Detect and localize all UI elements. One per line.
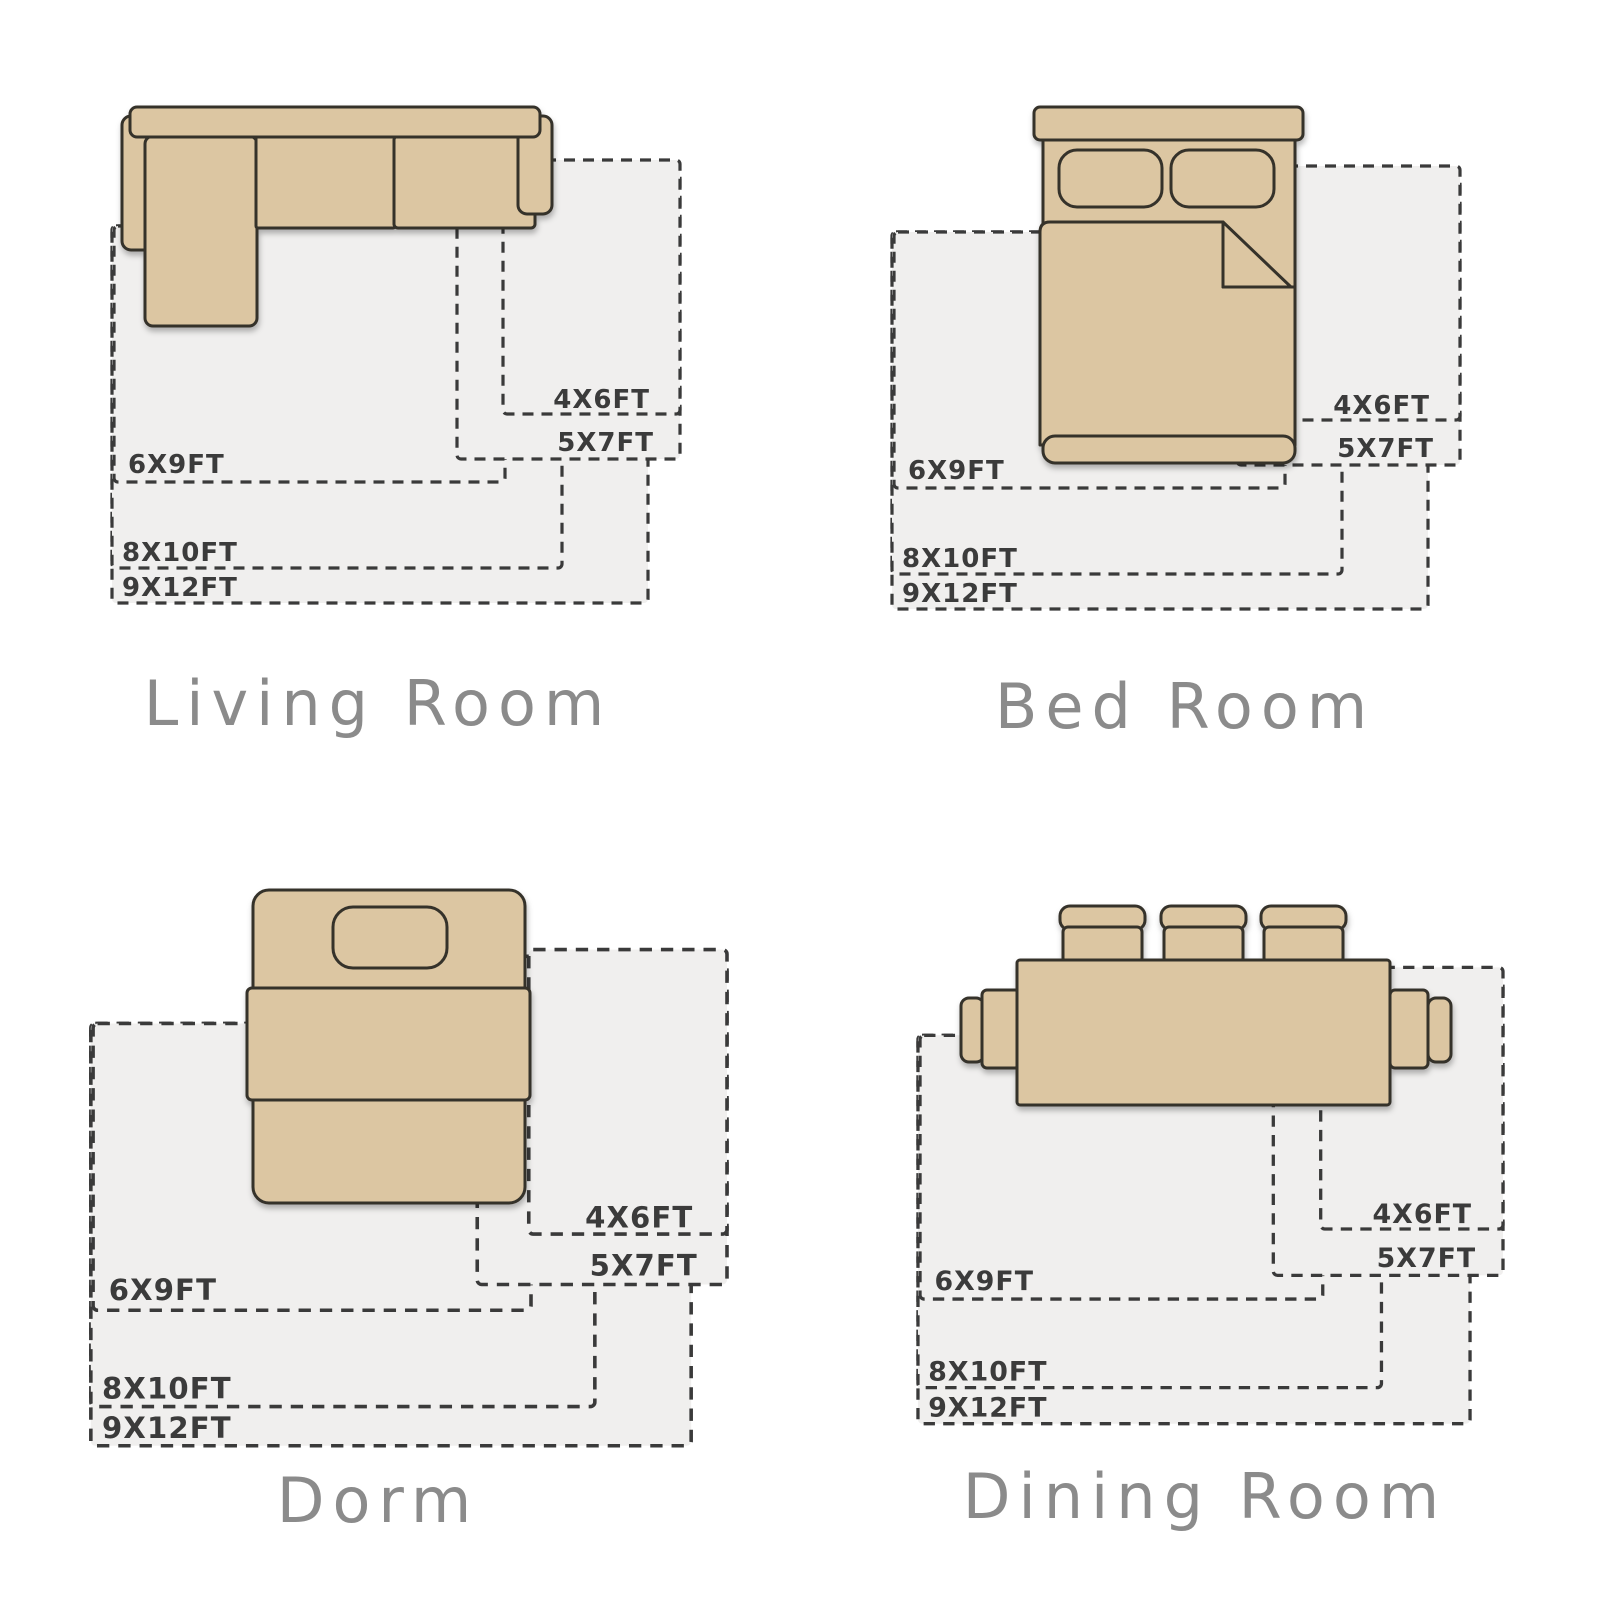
section-title-bed-room: Bed Room bbox=[995, 670, 1375, 743]
dorm-bed-pillow bbox=[333, 907, 447, 968]
dining-chair-back bbox=[1428, 998, 1451, 1062]
sofa-backrest bbox=[130, 107, 540, 137]
dining-chair-seat bbox=[1063, 927, 1142, 963]
bed-pillow-left bbox=[1059, 150, 1162, 207]
bed-pillow-right bbox=[1171, 150, 1274, 207]
rug-size-label: 4X6FT bbox=[553, 385, 650, 415]
dining-chair-seat bbox=[1164, 927, 1243, 963]
rug-size-label: 6X9FT bbox=[908, 456, 1005, 486]
rug-size-label: 5X7FT bbox=[1337, 434, 1434, 464]
rug-size-label: 6X9FT bbox=[934, 1266, 1034, 1297]
dining-table-icon bbox=[961, 906, 1451, 1105]
rug-size-label: 9X12FT bbox=[902, 579, 1018, 609]
rug-size-label: 8X10FT bbox=[928, 1356, 1047, 1387]
dorm-bed-blanket bbox=[247, 988, 530, 1100]
rug-size-label: 8X10FT bbox=[902, 544, 1018, 574]
sofa-chaise bbox=[145, 136, 257, 326]
rug-size-label: 6X9FT bbox=[109, 1273, 217, 1307]
rug-size-guide-canvas: 4X6FT 5X7FT 6X9FT 8X10FT 9X12FT 4X6FT 5X… bbox=[0, 0, 1600, 1600]
twin-bed-icon bbox=[247, 890, 530, 1203]
rug-size-label: 9X12FT bbox=[928, 1392, 1047, 1423]
rug-size-label: 6X9FT bbox=[128, 450, 225, 480]
dining-table-top bbox=[1017, 960, 1390, 1105]
bed-headboard bbox=[1034, 107, 1303, 140]
rug-size-label: 5X7FT bbox=[557, 428, 654, 458]
dining-chair-seat bbox=[1390, 990, 1428, 1068]
rug-size-label: 9X12FT bbox=[102, 1411, 232, 1445]
rug-size-label: 5X7FT bbox=[590, 1249, 698, 1283]
dining-chair-seat bbox=[1264, 927, 1343, 963]
rug-size-label: 5X7FT bbox=[1377, 1243, 1477, 1274]
bed-footboard bbox=[1043, 436, 1295, 463]
rug-size-label: 4X6FT bbox=[1333, 391, 1430, 421]
rug-size-guide: 4X6FT 5X7FT 6X9FT 8X10FT 9X12FT 4X6FT 5X… bbox=[0, 0, 1600, 1600]
rug-size-label: 4X6FT bbox=[585, 1200, 693, 1234]
section-title-dining-room: Dining Room bbox=[963, 1460, 1447, 1533]
rug-size-label: 9X12FT bbox=[122, 573, 238, 603]
rug-4x6-outline bbox=[529, 950, 727, 1234]
sofa-right-seat bbox=[394, 136, 535, 228]
section-title-living-room: Living Room bbox=[144, 667, 613, 740]
dining-chair-seat bbox=[982, 990, 1020, 1068]
rug-size-label: 8X10FT bbox=[102, 1372, 232, 1406]
rug-size-label: 8X10FT bbox=[122, 538, 238, 568]
rug-4x6-outline bbox=[1283, 166, 1460, 420]
sofa-mid-seat bbox=[256, 136, 395, 228]
rug-size-label: 4X6FT bbox=[1373, 1199, 1473, 1230]
double-bed-icon bbox=[1034, 107, 1303, 463]
section-title-dorm: Dorm bbox=[277, 1464, 479, 1537]
